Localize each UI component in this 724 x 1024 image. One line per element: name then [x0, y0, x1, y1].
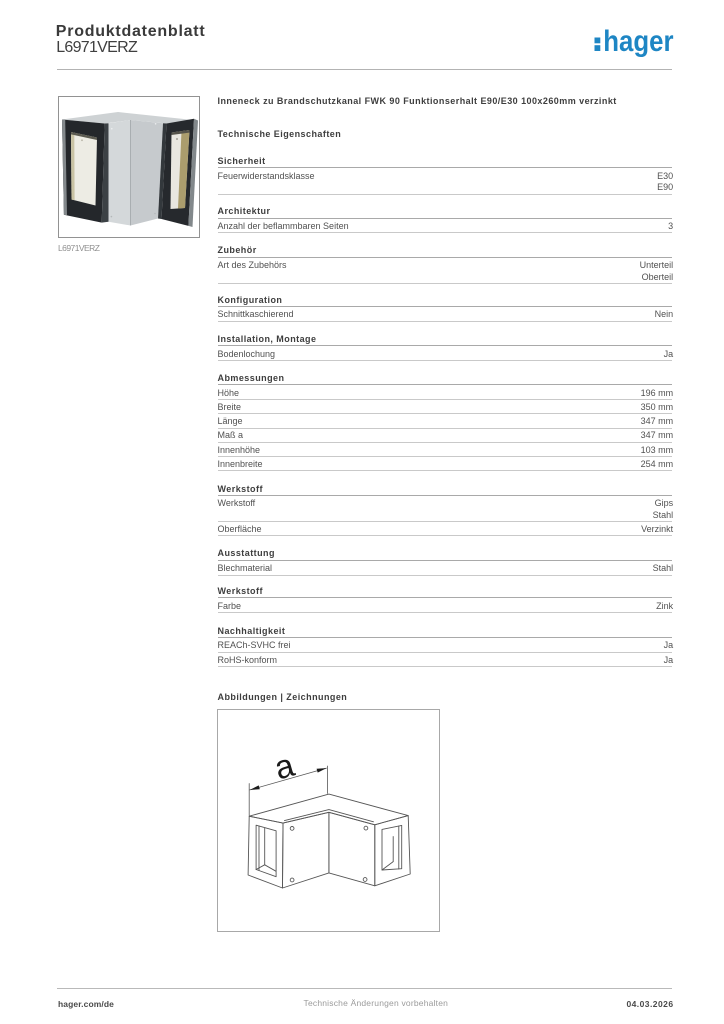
- svg-text:a: a: [270, 746, 298, 787]
- svg-text:hager: hager: [603, 27, 673, 58]
